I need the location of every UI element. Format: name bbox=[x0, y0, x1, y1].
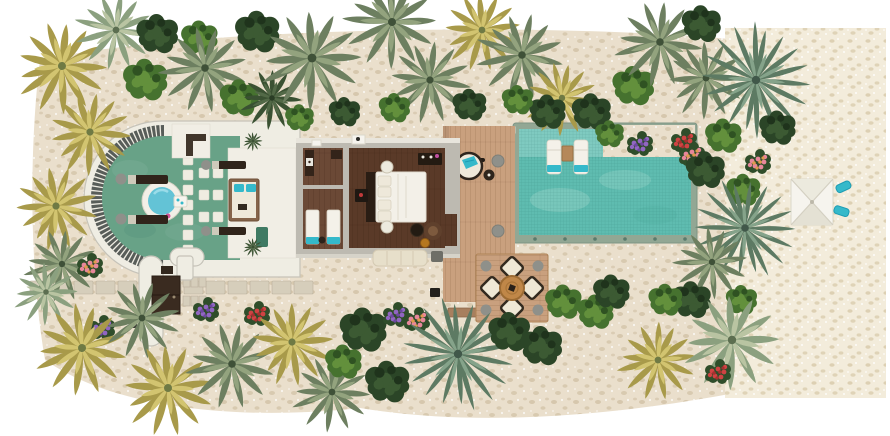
bedside-stool bbox=[381, 221, 393, 233]
spa-room bbox=[303, 189, 343, 249]
rattan-stool bbox=[421, 239, 430, 248]
pool-side-table bbox=[562, 146, 573, 161]
corner-pouf bbox=[533, 261, 544, 272]
sofa-pouf bbox=[431, 251, 443, 262]
gate-panel bbox=[161, 266, 173, 274]
daybed bbox=[229, 179, 259, 221]
ac-vent bbox=[312, 140, 321, 146]
spa-bed bbox=[327, 210, 340, 244]
spa-stool bbox=[319, 237, 326, 244]
corner-pouf bbox=[481, 261, 492, 272]
spa-bed bbox=[306, 210, 319, 244]
beach-umbrella bbox=[791, 179, 833, 225]
pillow bbox=[378, 211, 391, 221]
deck-bench bbox=[448, 308, 480, 317]
sun-lounger bbox=[116, 214, 169, 225]
dressing-room bbox=[303, 148, 343, 185]
deck-pouf bbox=[492, 225, 504, 237]
ac-unit bbox=[352, 135, 365, 144]
villa-plan-stage bbox=[0, 0, 890, 436]
cabinet bbox=[331, 150, 342, 159]
pool-lounger bbox=[547, 140, 561, 174]
console-table bbox=[418, 153, 442, 165]
coffee-table bbox=[411, 224, 424, 237]
deck-pouf bbox=[492, 155, 504, 167]
pool-lounger bbox=[574, 140, 588, 174]
villa-center-block bbox=[296, 135, 460, 266]
bath-tray bbox=[174, 196, 187, 207]
pillow bbox=[378, 200, 391, 210]
bedroom bbox=[349, 148, 457, 248]
corner-pouf bbox=[481, 305, 492, 316]
corner-pouf bbox=[533, 305, 544, 316]
bed bbox=[366, 172, 426, 222]
sun-lounger bbox=[201, 226, 246, 236]
sun-lounger bbox=[116, 174, 169, 185]
sun-lounger bbox=[201, 160, 246, 170]
entry-alcove bbox=[172, 124, 210, 158]
bedside-stool bbox=[381, 161, 393, 173]
planter-box bbox=[430, 288, 440, 297]
pillow bbox=[378, 176, 391, 186]
pillow bbox=[378, 187, 391, 197]
